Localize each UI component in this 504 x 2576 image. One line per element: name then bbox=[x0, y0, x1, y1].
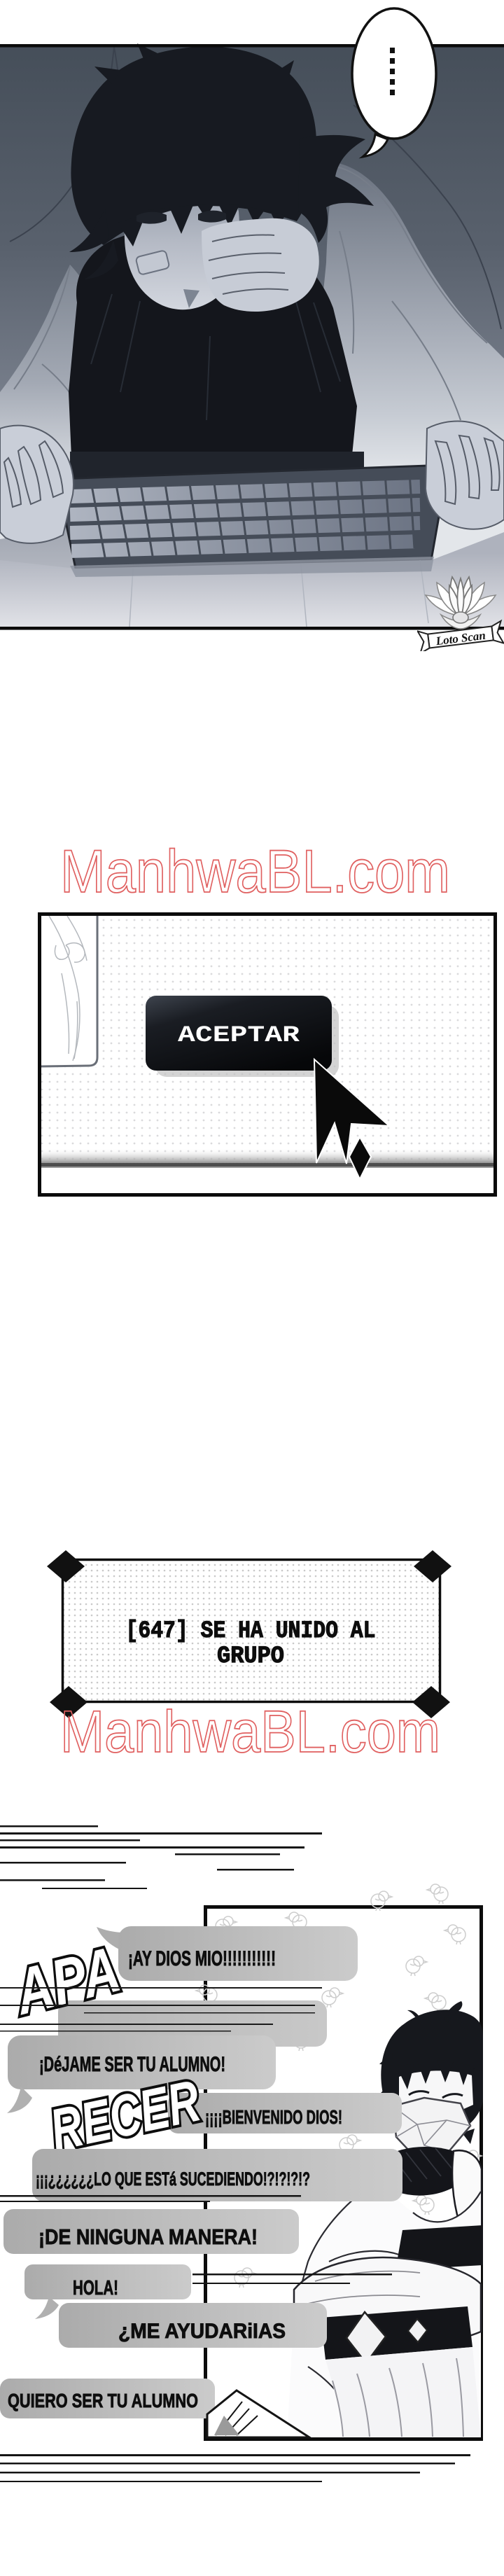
svg-text:¡¡¡¡BIENVENIDO DIOS!: ¡¡¡¡BIENVENIDO DIOS! bbox=[205, 2106, 342, 2128]
svg-text:QUIERO SER TU ALUMNO: QUIERO SER TU ALUMNO bbox=[8, 2390, 198, 2411]
svg-text:¡DE NINGUNA MANERA!: ¡DE NINGUNA MANERA! bbox=[38, 2225, 258, 2249]
svg-text:¡¡¡¿¿¿¿¿¿LO QUE ESTá SUCEDIEND: ¡¡¡¿¿¿¿¿¿LO QUE ESTá SUCEDIENDO!?!?!?!? bbox=[36, 2168, 310, 2189]
svg-text:GRUPO: GRUPO bbox=[217, 1643, 284, 1670]
svg-text:¿ME AYUDARiIAS: ¿ME AYUDARiIAS bbox=[118, 2320, 286, 2343]
svg-text:Loto Scan: Loto Scan bbox=[435, 629, 486, 648]
svg-text:¡AY DIOS MIO!!!!!!!!!!!: ¡AY DIOS MIO!!!!!!!!!!! bbox=[128, 1947, 276, 1970]
svg-text:ACEPTAR: ACEPTAR bbox=[178, 1022, 300, 1048]
svg-text:HOLA!: HOLA! bbox=[73, 2277, 118, 2299]
svg-text:ManhwaBL.com: ManhwaBL.com bbox=[60, 1699, 440, 1764]
svg-text:¡DéJAME SER TU ALUMNO!: ¡DéJAME SER TU ALUMNO! bbox=[39, 2053, 225, 2076]
svg-text:ManhwaBL.com: ManhwaBL.com bbox=[60, 838, 450, 905]
svg-text:[647] SE HA UNIDO AL: [647] SE HA UNIDO AL bbox=[126, 1618, 376, 1645]
